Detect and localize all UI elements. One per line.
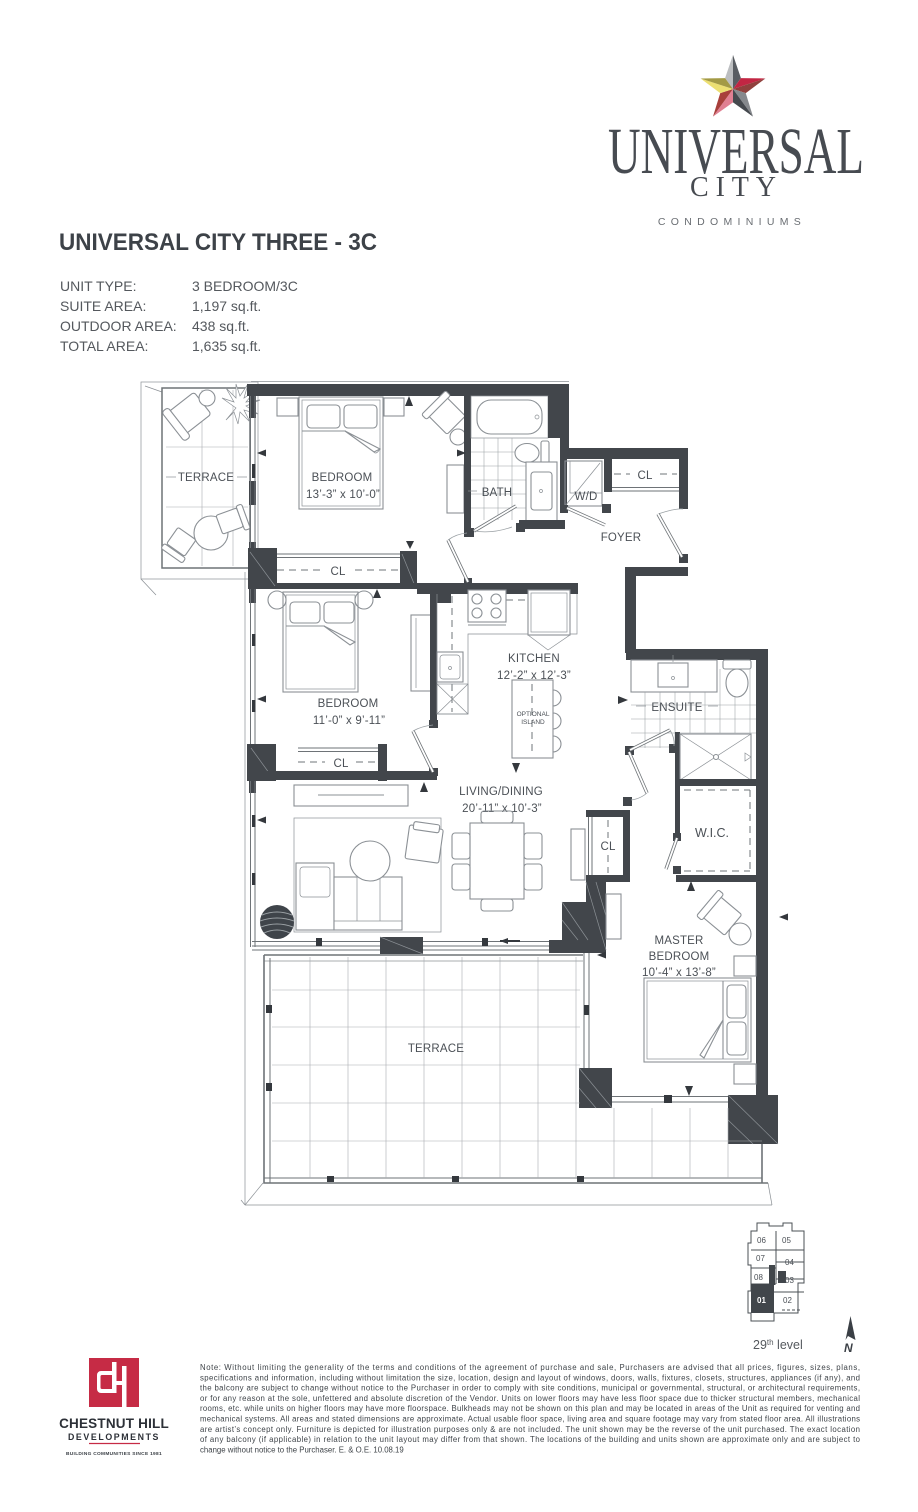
svg-text:BUILDING COMMUNITIES SINCE 198: BUILDING COMMUNITIES SINCE 1981	[66, 1451, 162, 1457]
svg-text:29th level: 29th level	[753, 1338, 803, 1352]
svg-text:01: 01	[757, 1296, 766, 1305]
svg-text:04: 04	[785, 1258, 794, 1267]
svg-text:LIVING/DINING: LIVING/DINING	[459, 786, 543, 798]
svg-text:rooms, etc. while units on hig: rooms, etc. while units on higher floors…	[200, 1404, 860, 1413]
svg-text:CHESTNUT HILL: CHESTNUT HILL	[59, 1416, 169, 1431]
svg-text:BEDROOM: BEDROOM	[312, 472, 373, 484]
svg-text:13’-3” x 10’-0”: 13’-3” x 10’-0”	[306, 489, 380, 501]
svg-text:1,197 sq.ft.: 1,197 sq.ft.	[192, 298, 261, 314]
svg-text:the balcony are subject to cha: the balcony are subject to change withou…	[200, 1384, 860, 1393]
svg-text:Note: Without limiting the gen: Note: Without limiting the generality of…	[200, 1363, 860, 1372]
svg-text:of any balcony (if applicable): of any balcony (if applicable) in relati…	[200, 1435, 861, 1444]
svg-text:CL: CL	[637, 470, 653, 482]
svg-text:W.I.C.: W.I.C.	[695, 826, 729, 840]
svg-text:BEDROOM: BEDROOM	[649, 951, 710, 963]
svg-text:FOYER: FOYER	[601, 532, 642, 544]
svg-text:SUITE AREA:: SUITE AREA:	[60, 298, 146, 314]
svg-text:CITY: CITY	[690, 172, 776, 203]
svg-text:08: 08	[754, 1273, 763, 1282]
svg-text:CONDOMINIUMS: CONDOMINIUMS	[658, 216, 806, 228]
svg-text:KITCHEN: KITCHEN	[508, 653, 560, 665]
svg-text:CL: CL	[600, 841, 616, 853]
svg-text:05: 05	[782, 1236, 791, 1245]
svg-text:CL: CL	[330, 566, 346, 578]
svg-text:ENSUITE: ENSUITE	[651, 702, 702, 714]
svg-text:3 BEDROOM/3C: 3 BEDROOM/3C	[192, 278, 298, 294]
svg-text:change without notice to the P: change without notice to the Purchaser. …	[200, 1445, 404, 1454]
svg-text:or for any reason at the sole,: or for any reason at the sole, unfettere…	[200, 1394, 860, 1403]
svg-text:OUTDOOR AREA:: OUTDOOR AREA:	[60, 318, 177, 334]
svg-text:ISLAND: ISLAND	[521, 719, 545, 726]
svg-text:06: 06	[757, 1236, 766, 1245]
svg-text:20’-11” x 10’-3”: 20’-11” x 10’-3”	[462, 803, 542, 815]
svg-text:TERRACE: TERRACE	[408, 1043, 464, 1055]
svg-text:11’-0” x 9’-11”: 11’-0” x 9’-11”	[313, 715, 385, 727]
svg-text:438 sq.ft.: 438 sq.ft.	[192, 318, 250, 334]
svg-text:1,635 sq.ft.: 1,635 sq.ft.	[192, 338, 261, 354]
svg-text:UNIT TYPE:: UNIT TYPE:	[60, 278, 137, 294]
svg-text:OPTIONAL: OPTIONAL	[517, 711, 550, 718]
svg-text:TERRACE: TERRACE	[178, 472, 234, 484]
svg-text:03: 03	[785, 1276, 794, 1285]
svg-text:mechanical systems. All areas: mechanical systems. All areas and stated…	[200, 1415, 860, 1424]
svg-text:MASTER: MASTER	[654, 935, 703, 947]
svg-text:UNIVERSAL CITY THREE - 3C: UNIVERSAL CITY THREE - 3C	[59, 229, 377, 256]
svg-text:BATH: BATH	[482, 487, 513, 499]
svg-text:W/D: W/D	[575, 491, 598, 503]
svg-text:10’-4” x 13’-8”: 10’-4” x 13’-8”	[642, 967, 716, 979]
svg-text:02: 02	[783, 1296, 792, 1305]
svg-text:N: N	[844, 1341, 853, 1355]
svg-text:CL: CL	[333, 758, 349, 770]
svg-text:TOTAL AREA:: TOTAL AREA:	[60, 338, 148, 354]
svg-text:BEDROOM: BEDROOM	[318, 698, 379, 710]
svg-text:07: 07	[756, 1254, 765, 1263]
svg-text:are artist’s concept only. Fur: are artist’s concept only. Furniture is …	[200, 1425, 860, 1434]
svg-text:specifications and information: specifications and information, includin…	[200, 1373, 860, 1382]
svg-text:DEVELOPMENTS: DEVELOPMENTS	[68, 1432, 160, 1442]
